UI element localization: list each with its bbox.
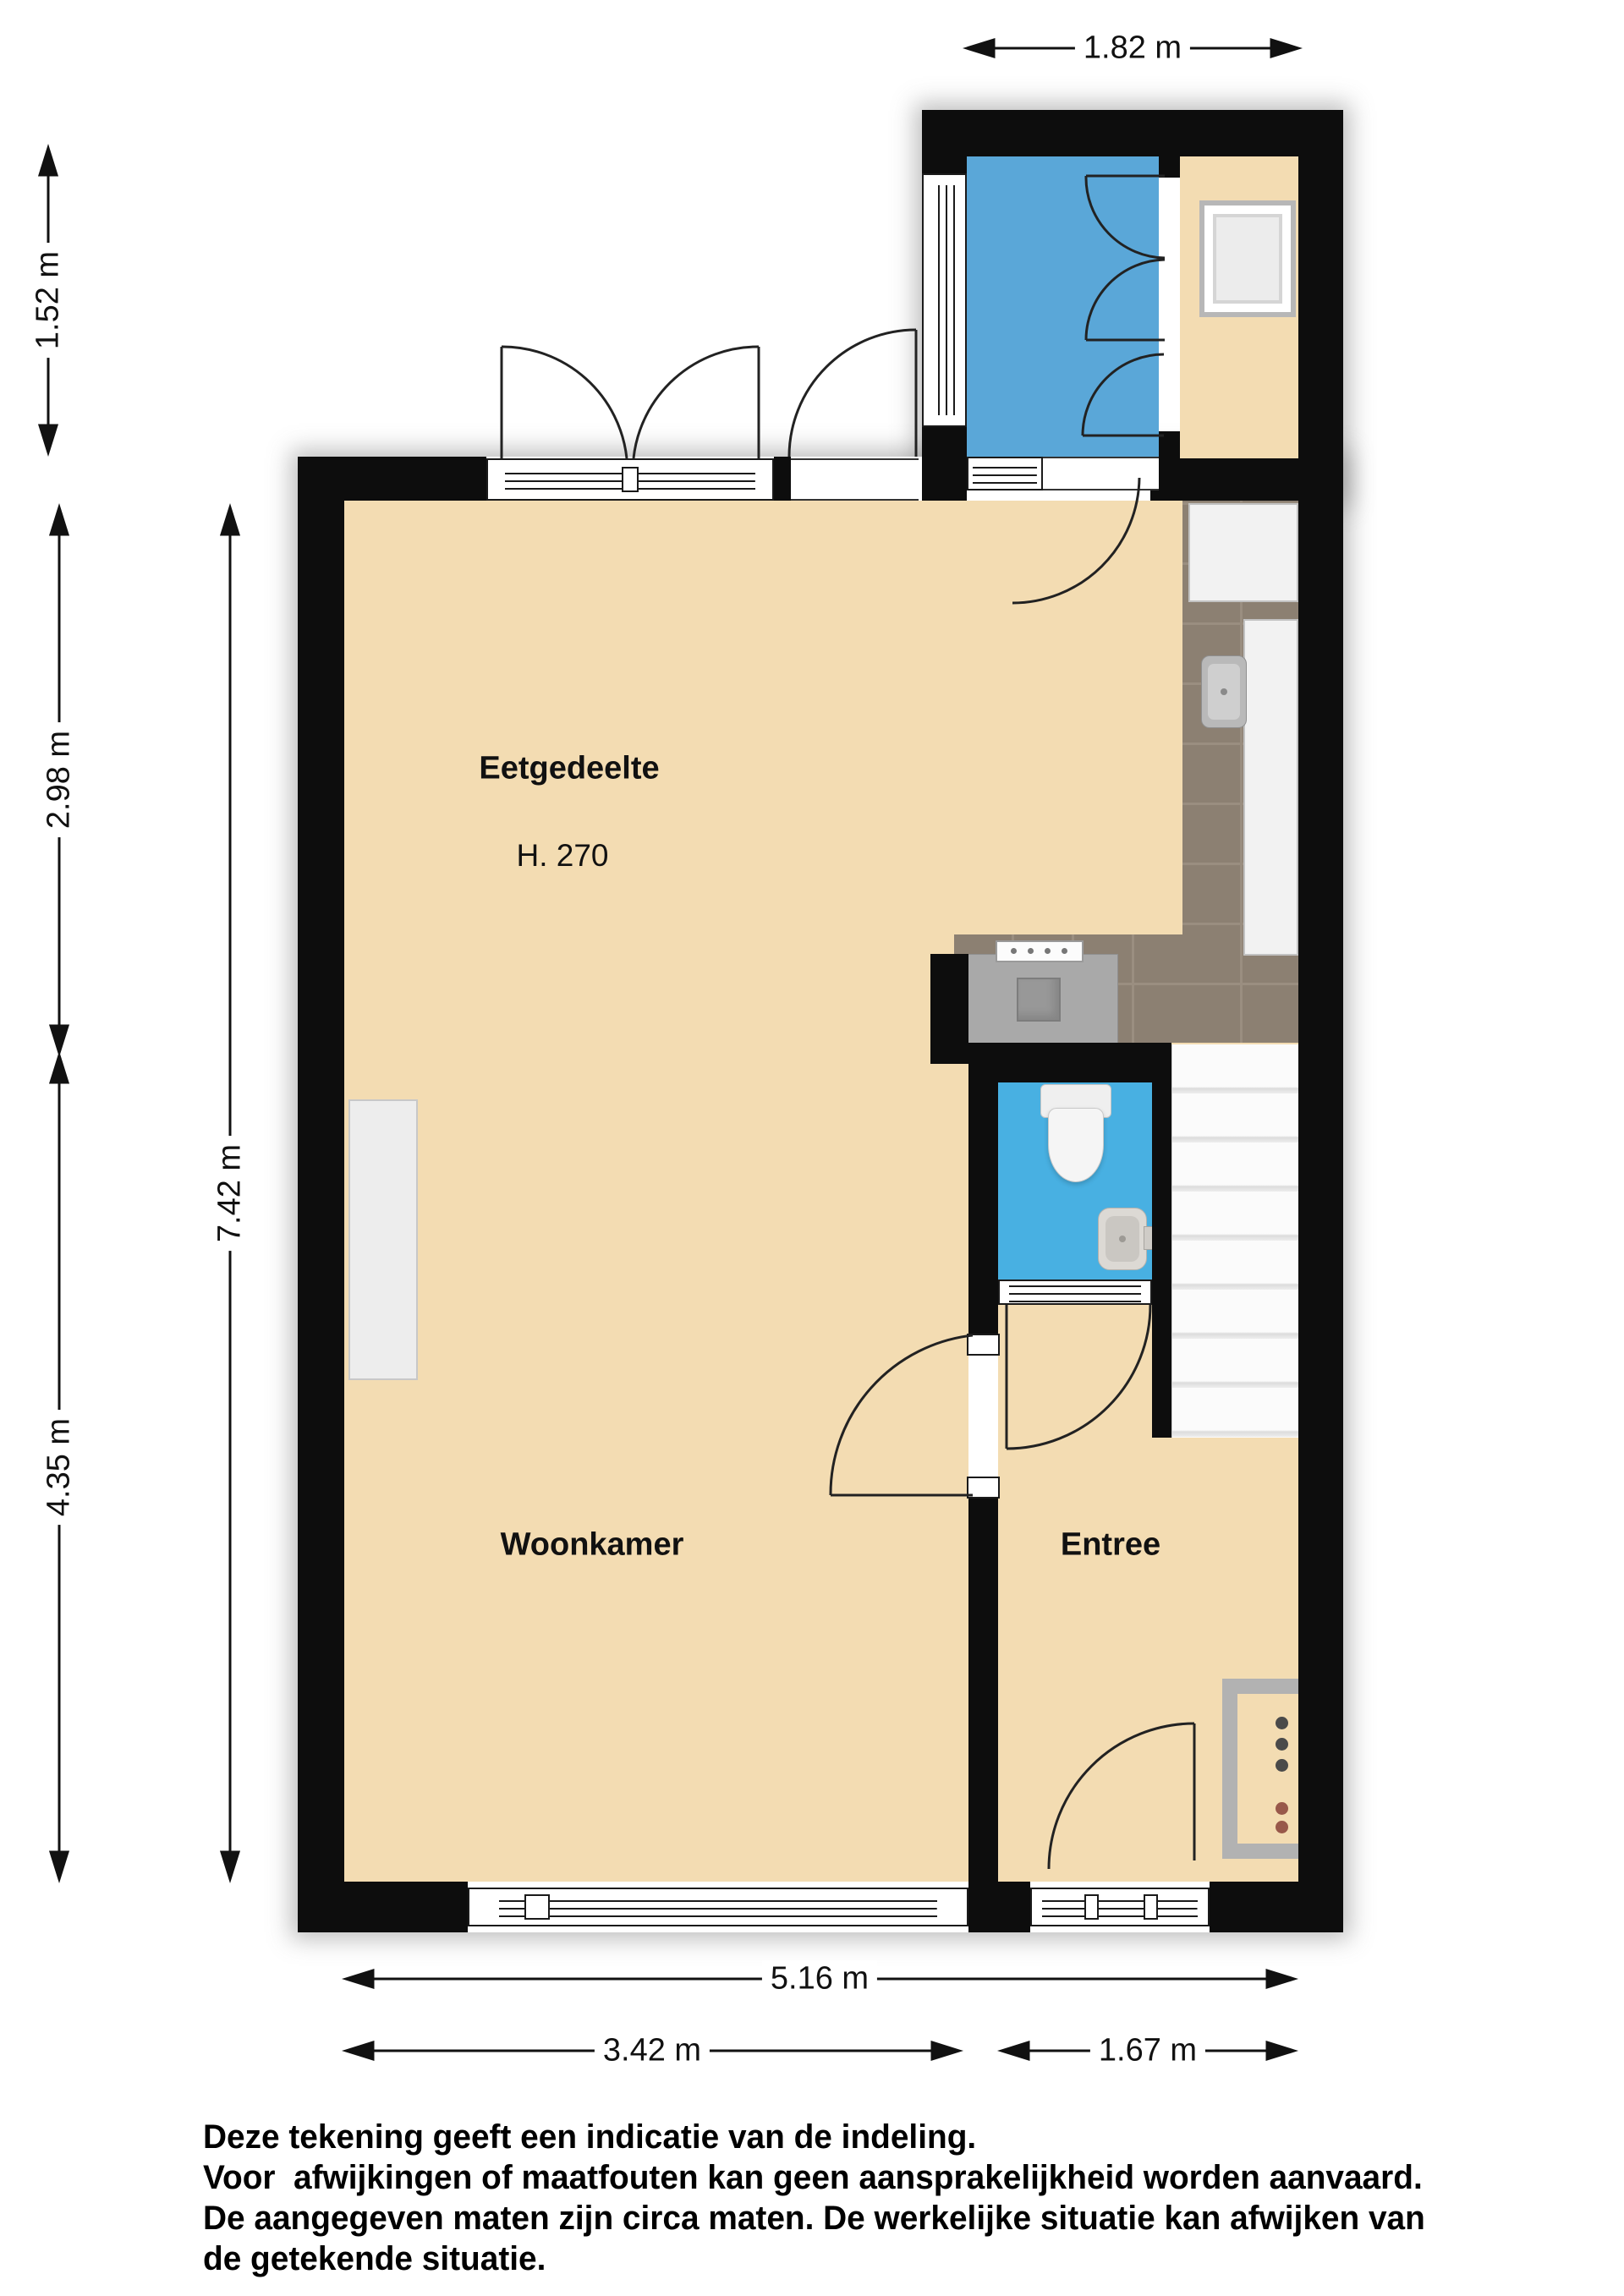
staircase <box>1171 1044 1299 1438</box>
wall-right-exterior <box>1298 110 1343 1932</box>
washing-machine <box>1199 200 1296 317</box>
wall-divider-lower <box>968 1499 998 1882</box>
front-door-mullion-1 <box>1084 1894 1099 1920</box>
cooktop-control-strip <box>996 940 1084 962</box>
disclaimer-line-1: Deze tekening geeft een indicatie van de… <box>203 2117 1425 2157</box>
meter-dot-4 <box>1276 1802 1288 1815</box>
wall-toilet-stairs <box>1152 1082 1171 1438</box>
floorplan-canvas: Eetgedeelte H. 270 Woonkamer Entree 1.82… <box>0 0 1624 2296</box>
woonkamer-window-mullion <box>524 1894 550 1920</box>
room-label-entree: Entree <box>1061 1527 1160 1564</box>
bathroom-door-threshold <box>1043 457 1159 490</box>
meter-dot-1 <box>1276 1717 1288 1729</box>
floor-bathroom-annex <box>967 156 1159 457</box>
wall-toilet-top <box>968 1064 1171 1082</box>
wall-toilet-left <box>968 1082 998 1281</box>
ceiling-height-label: H. 270 <box>516 838 608 874</box>
wall-main-top-mid <box>774 457 791 501</box>
back-door-arc <box>789 330 916 457</box>
dim-label-annex-width: 1.82 m <box>1075 30 1190 67</box>
divider-door-opening <box>968 1334 998 1499</box>
front-door-band <box>1030 1888 1210 1926</box>
french-door-right <box>634 347 759 458</box>
disclaimer-line-4: de getekende situatie. <box>203 2238 1425 2279</box>
dim-label-total-width: 5.16 m <box>762 1961 877 1997</box>
divider-door-frame-top <box>967 1334 1000 1356</box>
wall-bathroom-right-lower <box>1159 431 1180 458</box>
back-door-threshold <box>791 458 919 501</box>
toilet-bowl <box>1048 1108 1104 1182</box>
kitchen-counter-right <box>1243 619 1298 956</box>
radiator <box>348 1099 418 1380</box>
meter-cupboard <box>1222 1679 1300 1859</box>
wall-laundry-kitchen <box>1150 458 1298 501</box>
french-doors-mullion <box>622 467 639 492</box>
dim-label-total-depth: 7.42 m <box>212 1136 249 1251</box>
annex-left-window <box>922 173 967 427</box>
dim-label-woonkamer-width: 3.42 m <box>595 2033 710 2069</box>
disclaimer-text: Deze tekening geeft een indicatie van de… <box>203 2117 1425 2279</box>
wall-bottom-mid <box>968 1882 1030 1932</box>
meter-dot-3 <box>1276 1759 1288 1772</box>
bathroom-bottom-window <box>967 457 1043 490</box>
wall-annex-left-lower <box>922 427 967 501</box>
dim-label-entree-width: 1.67 m <box>1090 2033 1205 2069</box>
wall-annex-left-upper <box>922 110 967 173</box>
disclaimer-line-3: De aangegeven maten zijn circa maten. De… <box>203 2198 1425 2238</box>
french-door-left <box>502 347 627 458</box>
wall-kitchen-toilet <box>930 1043 1171 1064</box>
toilet-hand-basin <box>1098 1208 1147 1270</box>
cooktop-stove <box>1017 978 1061 1022</box>
wall-bottom-left <box>298 1882 468 1932</box>
meter-dot-2 <box>1276 1738 1288 1751</box>
meter-dot-5 <box>1276 1821 1288 1833</box>
dim-label-eetgedeelte-depth: 2.98 m <box>41 722 78 837</box>
wall-annex-top <box>922 110 1343 156</box>
kitchen-sink <box>1201 655 1247 728</box>
wall-left-exterior <box>298 457 344 1932</box>
toilet-door-band <box>998 1280 1152 1305</box>
dim-label-annex-depth: 1.52 m <box>30 243 67 358</box>
disclaimer-line-2: Voor afwijkingen of maatfouten kan geen … <box>203 2157 1425 2198</box>
divider-door-frame-bottom <box>967 1477 1000 1499</box>
kitchen-counter-top <box>1188 503 1298 602</box>
room-label-woonkamer: Woonkamer <box>501 1527 684 1564</box>
room-label-eetgedeelte: Eetgedeelte <box>479 751 659 787</box>
dim-label-woonkamer-depth: 4.35 m <box>41 1410 78 1525</box>
wall-divider-upper-stub <box>968 1281 998 1334</box>
wall-bathroom-right-upper <box>1159 156 1180 178</box>
front-door-mullion-2 <box>1144 1894 1158 1920</box>
wall-bottom-right <box>1210 1882 1343 1932</box>
